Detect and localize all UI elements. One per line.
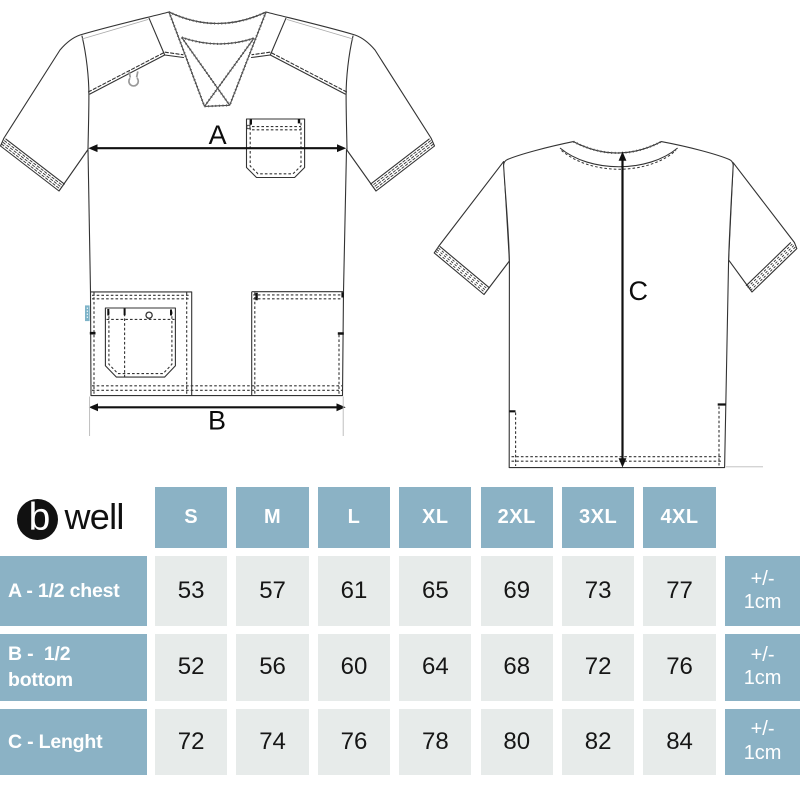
svg-text:A: A: [209, 120, 227, 150]
svg-text:B: B: [208, 406, 226, 436]
svg-text:C: C: [629, 276, 649, 306]
